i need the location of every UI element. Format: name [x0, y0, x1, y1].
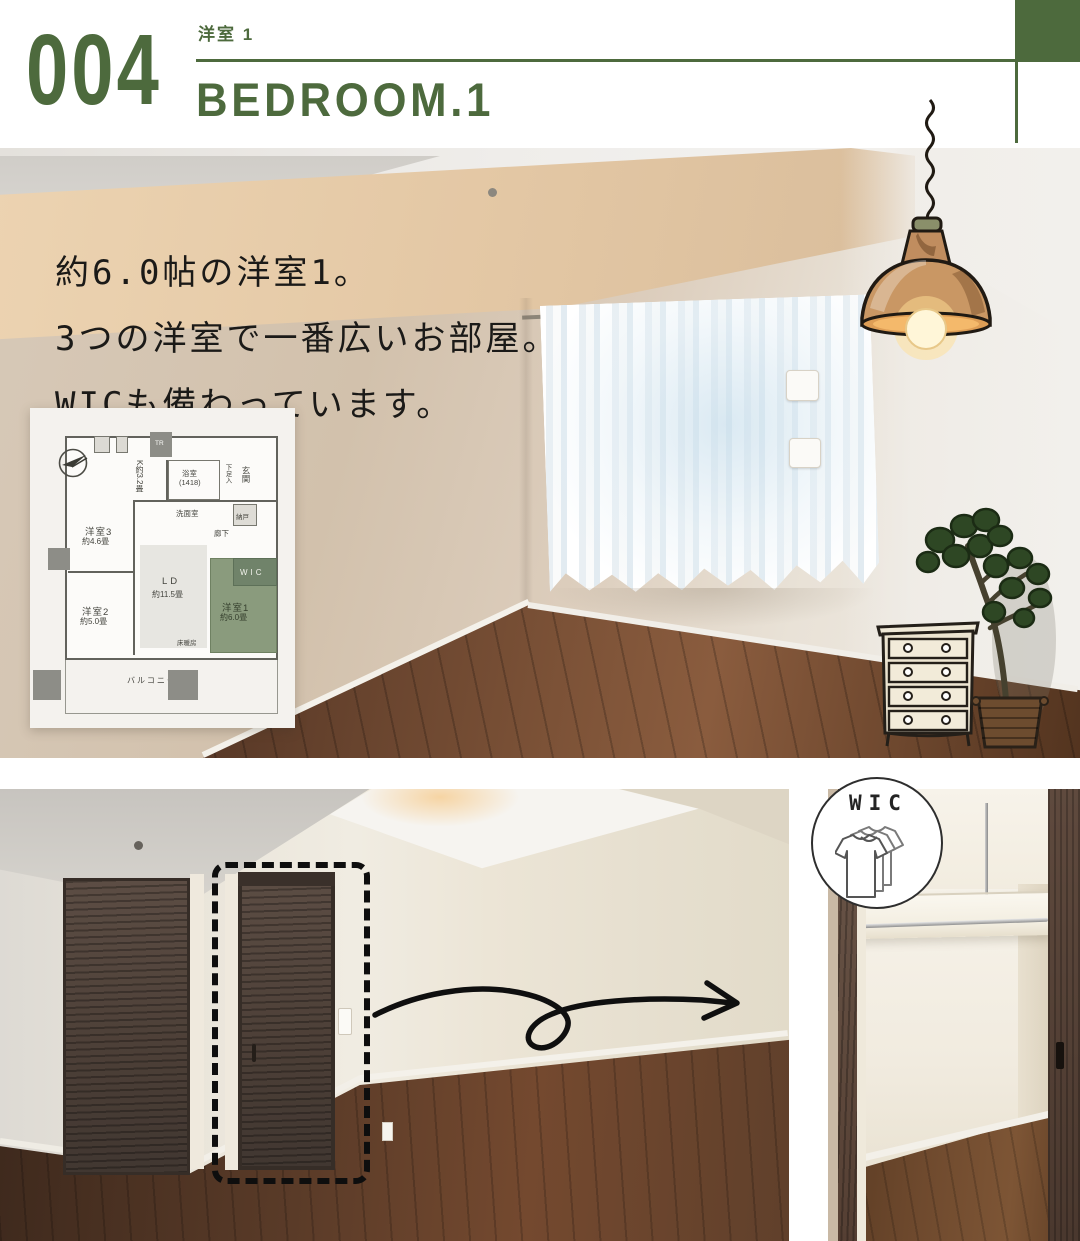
- pendant-lamp-illustration: [852, 96, 1000, 378]
- window-with-curtains: [540, 294, 880, 603]
- header-accent-square: [1015, 0, 1080, 62]
- description-line: 約6.0帖の洋室1。: [55, 240, 559, 306]
- plant-illustration: [898, 500, 1063, 755]
- header-divider-line: [196, 59, 1015, 62]
- room-label-japanese: 洋室 1: [198, 20, 254, 45]
- wall: [68, 571, 133, 573]
- sliding-door: [1048, 789, 1080, 1241]
- hand-drawn-arrow: [0, 789, 789, 1241]
- column: [48, 548, 70, 570]
- hallway-label: 廊下: [214, 528, 229, 539]
- light-switch: [786, 370, 819, 401]
- wic-label: WIC: [240, 568, 265, 577]
- bedroom-photo-doors: [0, 789, 789, 1241]
- header-accent-vline: [1015, 62, 1018, 143]
- description-line: 3つの洋室で一番広いお部屋。: [55, 306, 559, 372]
- living-label: LD: [162, 576, 180, 587]
- duct-box: [116, 436, 128, 453]
- wall-controller: [789, 438, 821, 468]
- section-number: 004: [26, 24, 162, 116]
- tshirts-icon: [835, 819, 920, 899]
- column: [168, 670, 198, 700]
- listing-page: 004 洋室 1 BEDROOM.1 約6.0帖の洋室1。 3つの洋室で一番広い…: [0, 0, 1080, 1241]
- wic-badge: WIC: [811, 777, 943, 909]
- wall: [133, 500, 278, 502]
- bedroom1-size: 約6.0畳: [220, 612, 247, 623]
- shoe-box-label: 下足入: [222, 464, 232, 484]
- bath-size: (1418): [179, 478, 201, 487]
- wic-badge-label: WIC: [849, 791, 908, 815]
- compass-icon: [56, 446, 90, 480]
- bedroom3-size: 約4.6畳: [82, 536, 109, 547]
- floor-heating-label: 床暖房: [177, 637, 197, 647]
- floorplan-panel: バルコニー TR WIC 洋室1 約6.0畳 LD 約11.5畳 床暖房 洋室3: [30, 408, 295, 728]
- wall: [133, 502, 135, 655]
- entrance-label: 玄関: [240, 466, 252, 483]
- column: [33, 670, 61, 700]
- page-title: BEDROOM.1: [196, 72, 494, 127]
- bedroom2-size: 約5.0畳: [80, 616, 107, 627]
- duct-box: [94, 436, 110, 453]
- kitchen-label: K約3.2畳: [134, 460, 145, 492]
- washroom-label: 洗面室: [176, 508, 199, 519]
- storage-label: 納戸: [236, 511, 249, 521]
- trunk-room-label: TR: [155, 440, 164, 447]
- ceiling-sensor: [488, 188, 497, 197]
- sliding-door-handle: [1056, 1042, 1064, 1069]
- living-size: 約11.5畳: [152, 589, 183, 600]
